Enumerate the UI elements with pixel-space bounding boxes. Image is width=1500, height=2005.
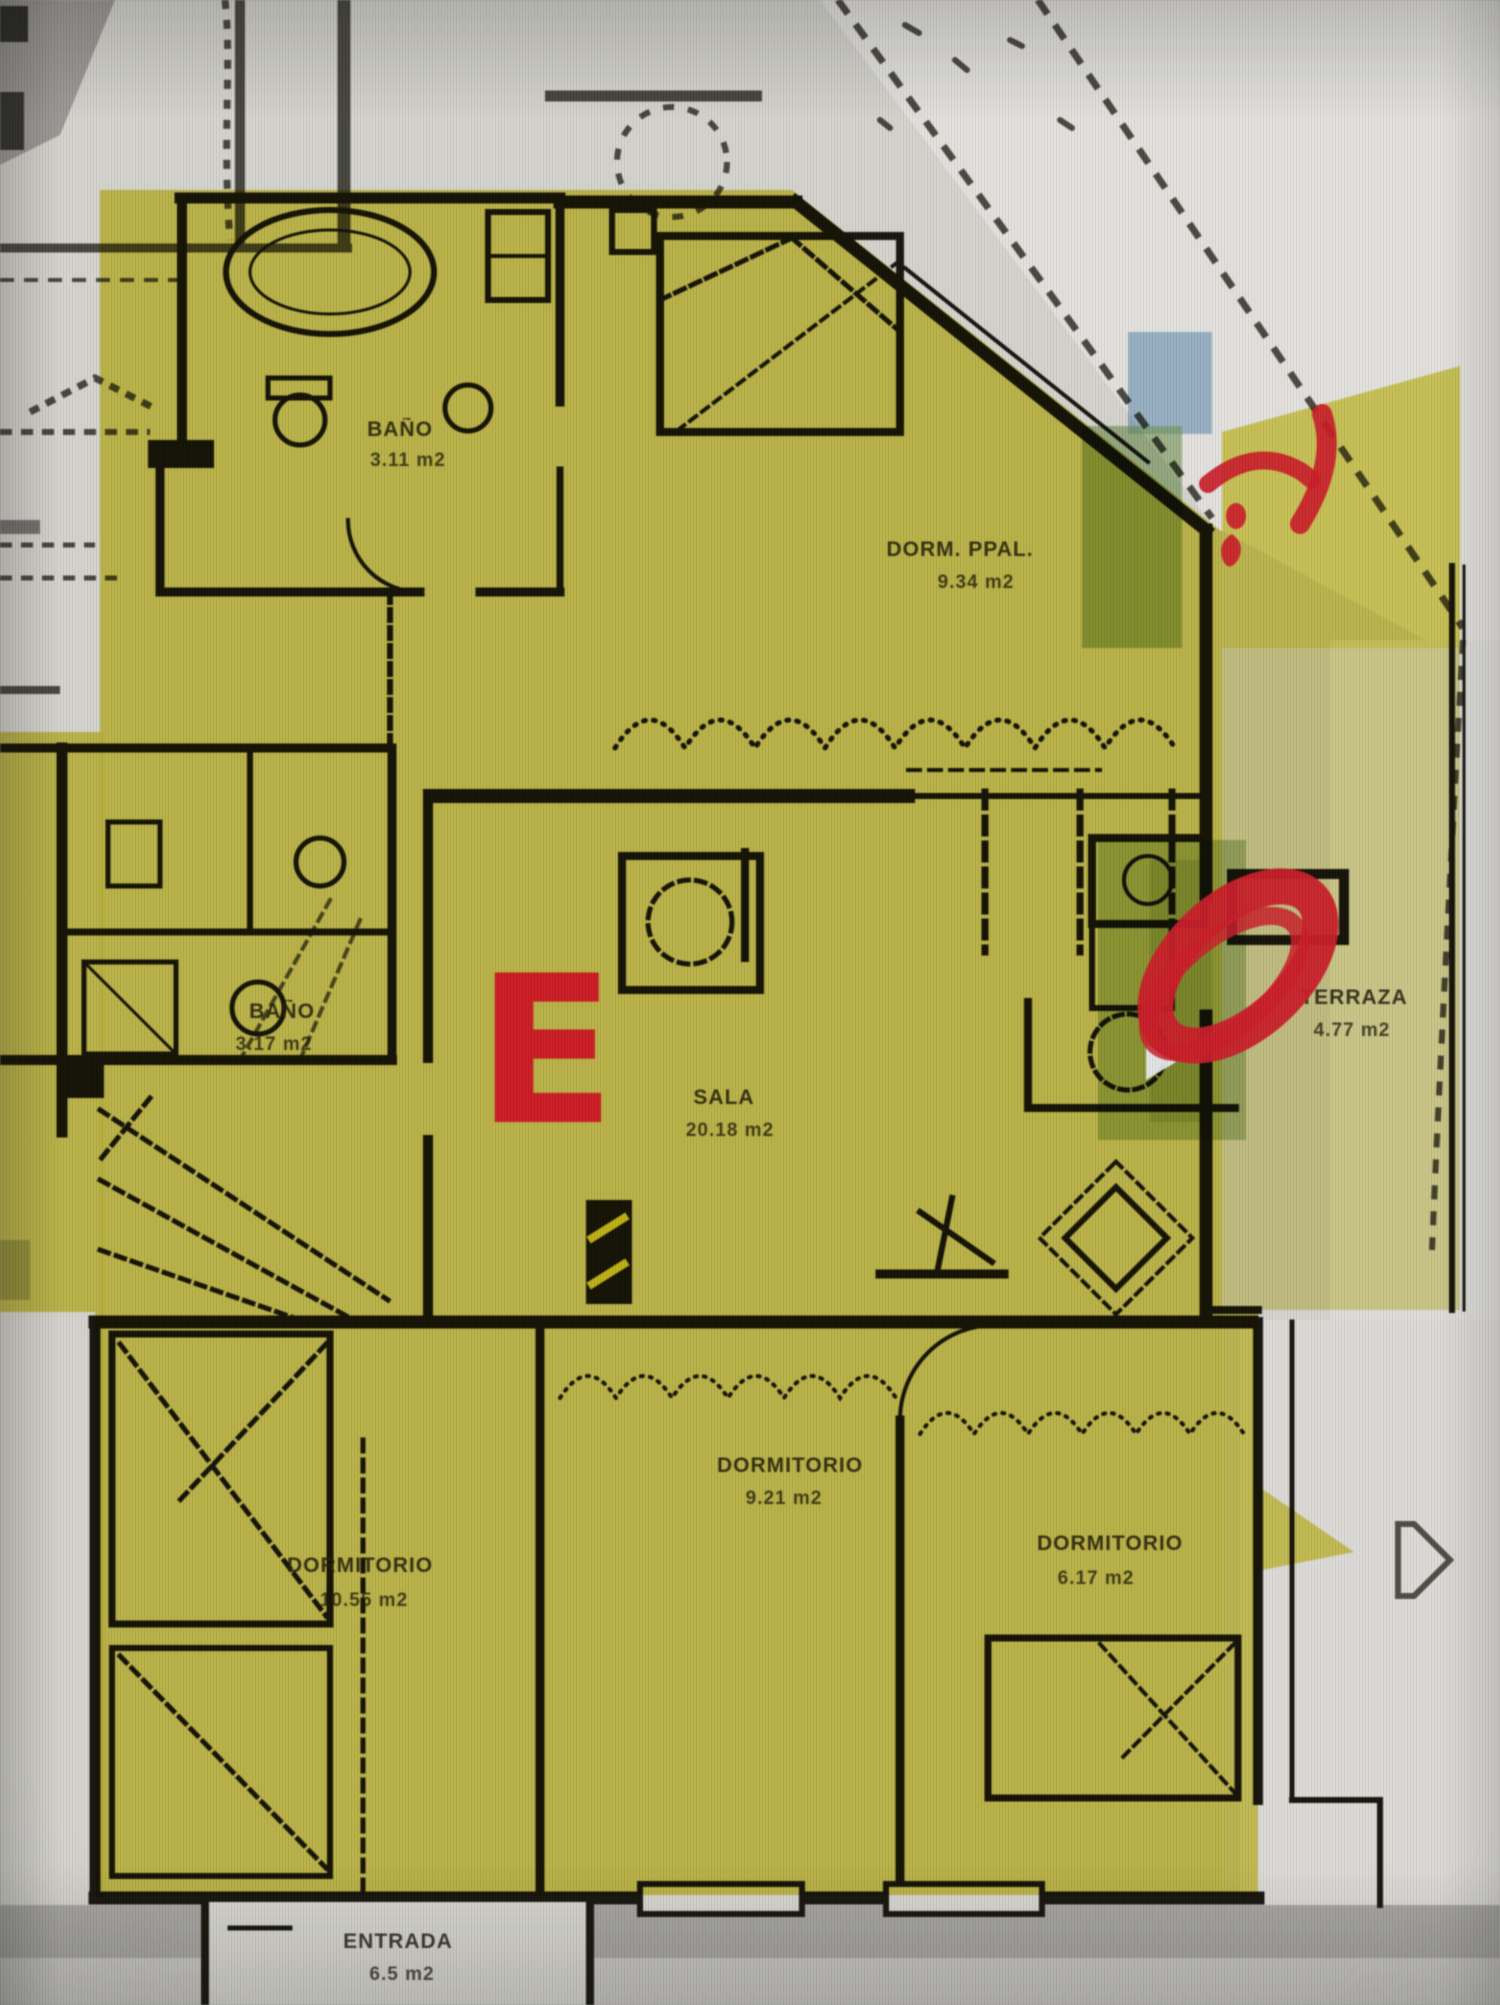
unit-letter: E [476, 933, 616, 1171]
floor-plan-photo: DORM. PPAL. 9.34 m2 BAÑO 3.11 m2 BAÑO 3.… [0, 0, 1500, 2005]
room-label-entrada: ENTRADA [343, 1930, 453, 1953]
green-marker-patch-top [1082, 426, 1182, 648]
blue-marker-patch [1128, 332, 1212, 434]
floor-plan-drawing: DORM. PPAL. 9.34 m2 BAÑO 3.11 m2 BAÑO 3.… [0, 0, 1500, 2005]
room-area-entrada: 6.5 m2 [369, 1964, 434, 1985]
